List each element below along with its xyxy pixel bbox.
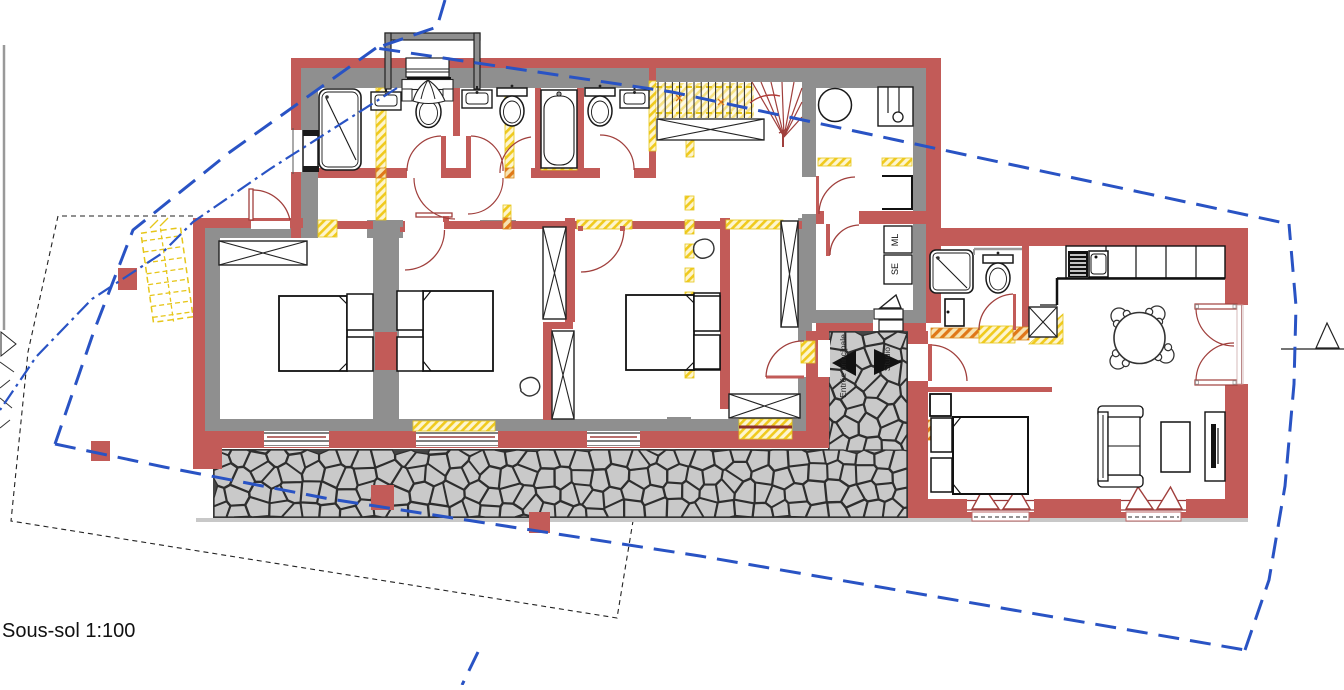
- svg-text:Sous-sol 1:100: Sous-sol 1:100: [2, 620, 135, 642]
- svg-text:Studio: Studio: [882, 347, 892, 371]
- svg-text:Entrée principale: Entrée principale: [838, 334, 848, 398]
- svg-text:ML: ML: [890, 234, 900, 247]
- svg-text:SE: SE: [890, 263, 900, 275]
